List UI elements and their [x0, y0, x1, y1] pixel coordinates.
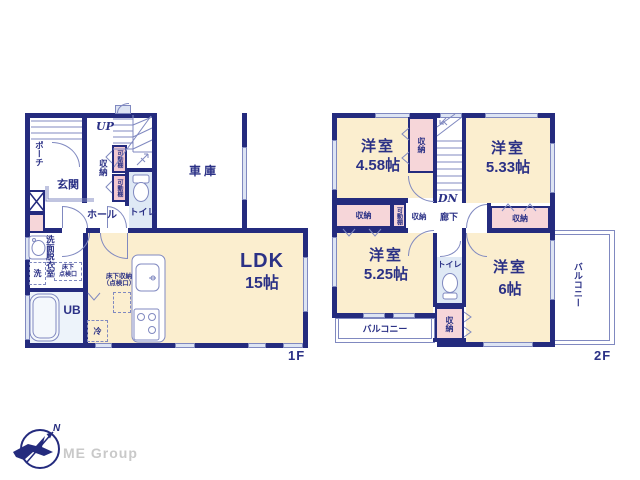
room-se-size: 6帖 — [490, 282, 530, 299]
room-ne-size: 5.33帖 — [476, 160, 540, 177]
linework-layer: N — [0, 0, 640, 480]
room-ne-name: 洋室 — [480, 141, 536, 158]
balcony-south-label: バルコニー — [360, 325, 410, 335]
ldk-size-label: 15帖 — [238, 275, 286, 293]
entrance-label: 玄関 — [48, 179, 88, 191]
stairs-1f-icon — [113, 115, 152, 167]
floorplan: 可動棚 可動棚 収納 収納 可動棚 収納 収納 洗 床下 点検口 冷 — [0, 0, 640, 480]
stairs-2f-icon — [437, 114, 462, 190]
toilet-icon-1f — [133, 175, 149, 202]
underfloor-storage-label: 床下収納 （点検口） — [98, 273, 140, 288]
hall-label: ホール — [82, 210, 122, 221]
room-nw-size: 4.58帖 — [346, 158, 410, 175]
unit-bath-label: UB — [58, 304, 86, 317]
company-logo-text: ME Group — [63, 445, 138, 461]
closet-w-small-label: 収納 — [404, 213, 434, 221]
stairs-up-label: UP — [96, 121, 114, 133]
porch-label: ポーチ — [34, 141, 43, 167]
garage-label: 車庫 — [182, 165, 226, 178]
room-sw-name: 洋室 — [358, 248, 414, 265]
storage-label-1f: 収納 — [98, 159, 107, 176]
room-sw-size: 5.25帖 — [354, 267, 418, 284]
bathtub-icon — [30, 294, 59, 341]
corridor-label: 廊下 — [436, 213, 462, 223]
room-nw-name: 洋室 — [350, 139, 406, 156]
porch-steps-icon — [31, 121, 82, 139]
balcony-east-label: バルコニー — [572, 262, 582, 307]
ldk-name-label: LDK — [236, 250, 288, 272]
compass-north-label: N — [53, 423, 61, 434]
kitchen-icon — [132, 255, 165, 342]
toilet-label-1f: トイレ — [128, 208, 158, 218]
room-se-name: 洋室 — [482, 260, 538, 277]
floor1-label: 1F — [288, 349, 305, 363]
compass-icon: N — [13, 423, 61, 468]
washroom-label: 洗面脱衣室 — [45, 235, 54, 278]
x-cabinet-icon — [29, 192, 44, 211]
floor2-label: 2F — [594, 349, 611, 363]
toilet-icon-2f — [443, 274, 458, 300]
stairs-down-label: DN — [438, 193, 458, 205]
toilet-label-2f: トイレ — [436, 261, 463, 270]
